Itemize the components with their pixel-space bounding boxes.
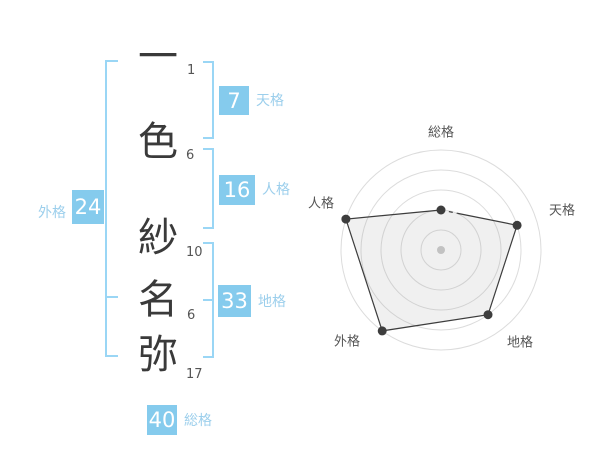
chikaku-score-box: 33 xyxy=(218,285,251,317)
name-char-2: 色 xyxy=(136,120,180,164)
name-char-4: 名 xyxy=(136,278,180,322)
radar-axis-label-gaikaku: 外格 xyxy=(334,331,360,350)
tenkaku-score-box: 7 xyxy=(219,86,249,115)
stroke-count-2: 6 xyxy=(186,149,194,163)
soukaku-score-box: 40 xyxy=(147,405,177,435)
name-char-1: 一 xyxy=(136,35,180,79)
jinkaku-score-box: 16 xyxy=(219,175,255,205)
seimei-handan-panel: 一 色 紗 名 弥 1 6 10 6 17 7 天格 16 人格 33 地格 外… xyxy=(0,0,600,470)
gaikaku-label: 外格 xyxy=(38,205,66,221)
chikaku-label: 地格 xyxy=(258,294,286,310)
stroke-count-5: 17 xyxy=(186,368,203,382)
radar-axis-label-tenkaku: 天格 xyxy=(549,200,575,219)
stroke-count-3: 10 xyxy=(186,246,203,260)
soukaku-label: 総格 xyxy=(184,413,212,429)
radar-axis-label-jinkaku: 人格 xyxy=(308,193,334,212)
radar-axis-label-soukaku: 総格 xyxy=(428,122,454,141)
radar-axis-label-chikaku: 地格 xyxy=(507,332,533,351)
gaikaku-score-box: 24 xyxy=(72,190,104,224)
name-char-5: 弥 xyxy=(136,333,180,377)
stroke-count-1: 1 xyxy=(187,64,195,78)
tenkaku-label: 天格 xyxy=(256,93,284,109)
name-char-3: 紗 xyxy=(136,216,180,260)
stroke-count-4: 6 xyxy=(187,309,195,323)
jinkaku-label: 人格 xyxy=(262,182,290,198)
